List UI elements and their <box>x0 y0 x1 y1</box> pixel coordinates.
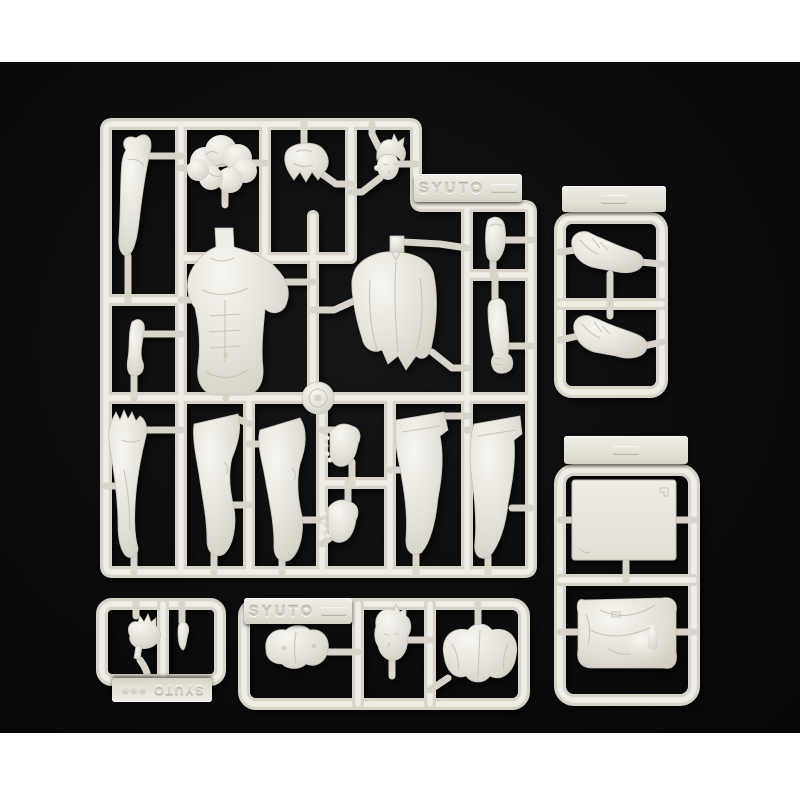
part-pelvis-piece <box>443 624 517 682</box>
part-upper-arm-segment <box>485 217 505 261</box>
part-gate-disc <box>302 382 334 414</box>
part-flared-leg-c <box>395 412 448 554</box>
part-boot-lower <box>574 316 647 358</box>
top-right-sprue-tag <box>562 186 666 212</box>
bottom-right-sprue-tag <box>564 436 688 464</box>
part-forearm-fist <box>488 298 513 373</box>
part-folded-jacket <box>577 598 676 669</box>
main-sprue-tag-label: SYUTO <box>419 180 485 197</box>
bottom-left-sprue <box>102 604 220 680</box>
bottom-right-tag-emboss-marks <box>613 446 639 455</box>
top-right-sprue <box>560 218 662 392</box>
part-thigh-leg-a <box>193 414 239 556</box>
bottom-left-sprue-tag-label: SYUTO <box>152 683 203 697</box>
part-base-plate <box>572 480 676 560</box>
main-tag-emboss-marks <box>491 184 517 193</box>
part-chest-piece <box>266 626 329 669</box>
bottom-middle-sprue-tag: SYUTO <box>244 598 352 624</box>
top-right-tag-emboss-marks <box>601 195 627 204</box>
part-boot-upper <box>572 232 644 273</box>
part-flared-leg-d <box>470 416 522 558</box>
part-shirt-back <box>352 236 437 370</box>
bottom-right-sprue <box>560 470 694 700</box>
part-wavy-hair <box>187 135 257 193</box>
part-bent-arm <box>119 135 151 256</box>
bottom-left-sprue-tag-marks: ✳✳✳ <box>121 685 147 696</box>
part-open-hand <box>128 614 160 660</box>
part-thigh-leg-b <box>259 418 305 561</box>
main-sprue-tag: SYUTO <box>414 174 522 202</box>
part-spiky-hair-head <box>375 604 411 660</box>
bottom-middle-tag-emboss-marks <box>321 607 347 616</box>
product-photo: SYUTO SYUTO SYUTO ✳✳✳ <box>0 0 800 800</box>
part-small-grip <box>178 622 189 650</box>
bottom-middle-sprue-tag-label: SYUTO <box>249 603 315 620</box>
bottom-left-sprue-tag: SYUTO ✳✳✳ <box>112 678 212 702</box>
part-small-foot <box>127 320 144 376</box>
